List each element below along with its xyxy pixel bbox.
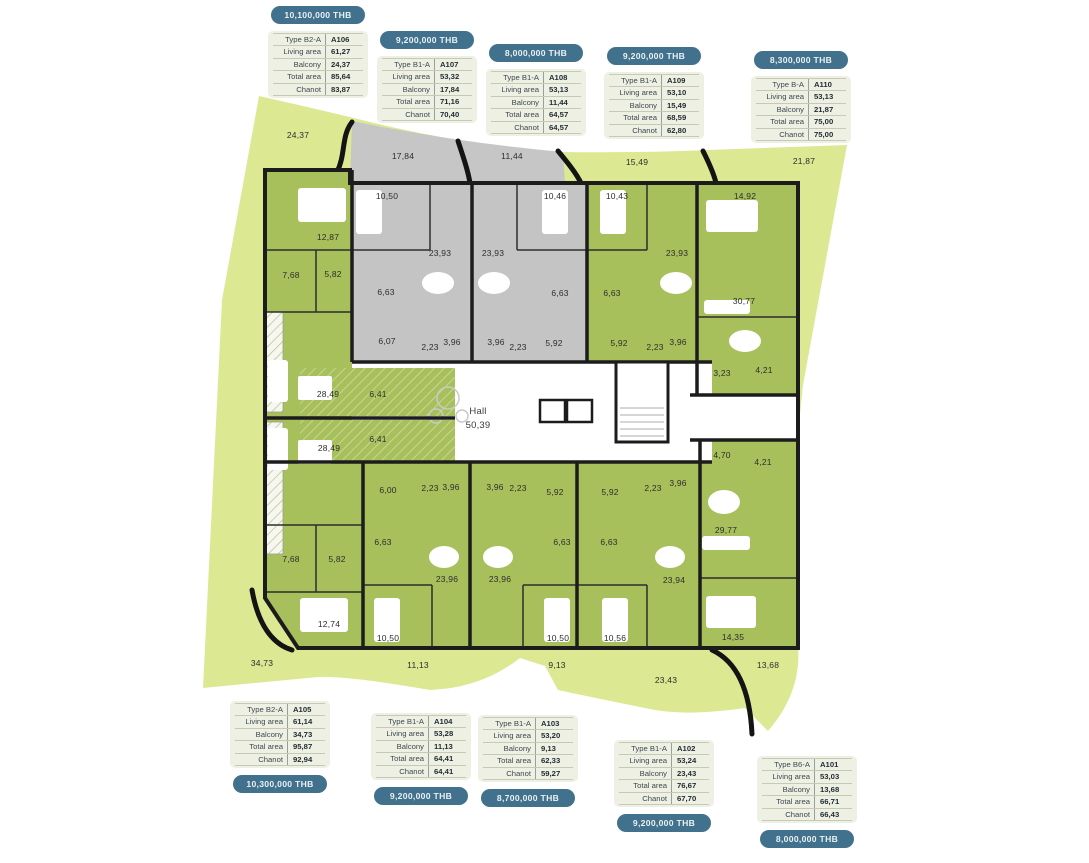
unit-cards-layer: 10,100,000 THB Type B2-AA106Living area6… [0, 0, 1089, 863]
row-label: Chanot [273, 84, 326, 95]
row-label: Living area [273, 46, 326, 57]
card-row: Chanot59,27 [483, 768, 573, 780]
row-label: Balcony [382, 84, 435, 95]
unit-card-a109: 9,200,000 THB Type B1-AA109Living area53… [604, 47, 704, 139]
row-label: Chanot [376, 766, 429, 777]
row-value: 53,28 [429, 728, 466, 739]
card-row: Balcony34,73 [235, 729, 325, 741]
row-label: Type B1-A [483, 718, 536, 729]
unit-info-table: Type B1-AA107Living area53,32Balcony17,8… [377, 56, 477, 123]
card-row: Total area68,59 [609, 112, 699, 124]
unit-card-a108: 8,000,000 THB Type B1-AA108Living area53… [486, 44, 586, 136]
row-label: Living area [619, 755, 672, 766]
card-row: Total area75,00 [756, 116, 846, 128]
row-label: Balcony [376, 741, 429, 752]
card-row: Chanot83,87 [273, 84, 363, 96]
row-value: A101 [815, 759, 852, 770]
card-row: Living area53,10 [609, 87, 699, 99]
card-row: Type B1-AA109 [609, 74, 699, 87]
card-row: Living area53,32 [382, 71, 472, 83]
unit-card-a101: 8,000,000 THB Type B6-AA101Living area53… [757, 756, 857, 848]
row-label: Type B1-A [609, 75, 662, 86]
card-row: Balcony24,37 [273, 59, 363, 71]
row-label: Chanot [756, 129, 809, 140]
row-value: 53,32 [435, 71, 472, 82]
row-value: 53,24 [672, 755, 709, 766]
row-value: 83,87 [326, 84, 363, 95]
row-label: Balcony [619, 768, 672, 779]
card-row: Balcony11,44 [491, 97, 581, 109]
price-badge: 10,100,000 THB [271, 6, 365, 24]
unit-card-a107: 9,200,000 THB Type B1-AA107Living area53… [377, 31, 477, 123]
row-label: Type B1-A [382, 59, 435, 70]
card-row: Living area53,24 [619, 755, 709, 767]
card-row: Living area61,14 [235, 716, 325, 728]
card-row: Total area71,16 [382, 96, 472, 108]
row-value: 21,87 [809, 104, 846, 115]
card-row: Type B1-AA104 [376, 715, 466, 728]
row-label: Balcony [762, 784, 815, 795]
floorplan-page: 24,3717,8411,4415,4921,8734,7311,139,132… [0, 0, 1089, 863]
card-row: Type B1-AA108 [491, 71, 581, 84]
row-value: 61,27 [326, 46, 363, 57]
row-label: Total area [382, 96, 435, 107]
row-label: Type B2-A [235, 704, 288, 715]
card-row: Living area53,13 [756, 91, 846, 103]
unit-card-a106: 10,100,000 THB Type B2-AA106Living area6… [268, 6, 368, 98]
row-label: Total area [491, 109, 544, 120]
unit-info-table: Type B1-AA102Living area53,24Balcony23,4… [614, 740, 714, 807]
row-value: 34,73 [288, 729, 325, 740]
row-value: 23,43 [672, 768, 709, 779]
card-row: Total area85,64 [273, 71, 363, 83]
row-value: 85,64 [326, 71, 363, 82]
unit-info-table: Type B1-AA108Living area53,13Balcony11,4… [486, 69, 586, 136]
row-value: 17,84 [435, 84, 472, 95]
row-value: 62,80 [662, 125, 699, 136]
row-value: 64,41 [429, 753, 466, 764]
row-label: Balcony [491, 97, 544, 108]
card-row: Balcony17,84 [382, 84, 472, 96]
row-value: 9,13 [536, 743, 573, 754]
card-row: Balcony23,43 [619, 768, 709, 780]
row-label: Chanot [382, 109, 435, 120]
row-value: 64,41 [429, 766, 466, 777]
card-row: Total area64,41 [376, 753, 466, 765]
unit-card-a103: 8,700,000 THB Type B1-AA103Living area53… [478, 715, 578, 807]
card-row: Type B-AA110 [756, 78, 846, 91]
row-label: Balcony [756, 104, 809, 115]
row-label: Type B2-A [273, 34, 326, 45]
row-label: Type B1-A [376, 716, 429, 727]
row-value: 53,20 [536, 730, 573, 741]
row-value: 92,94 [288, 754, 325, 765]
unit-info-table: Type B1-AA104Living area53,28Balcony11,1… [371, 713, 471, 780]
card-row: Balcony13,68 [762, 784, 852, 796]
card-row: Living area53,28 [376, 728, 466, 740]
row-value: A104 [429, 716, 466, 727]
row-value: 64,57 [544, 122, 581, 133]
row-value: 11,13 [429, 741, 466, 752]
card-row: Type B2-AA106 [273, 33, 363, 46]
row-label: Balcony [235, 729, 288, 740]
price-badge: 9,200,000 THB [374, 787, 468, 805]
row-value: A109 [662, 75, 699, 86]
row-value: 70,40 [435, 109, 472, 120]
row-label: Type B1-A [491, 72, 544, 83]
row-value: 68,59 [662, 112, 699, 123]
row-value: 75,00 [809, 129, 846, 140]
row-label: Balcony [273, 59, 326, 70]
row-label: Chanot [235, 754, 288, 765]
row-label: Chanot [491, 122, 544, 133]
card-row: Chanot67,70 [619, 793, 709, 805]
price-badge: 8,700,000 THB [481, 789, 575, 807]
unit-info-table: Type B2-AA106Living area61,27Balcony24,3… [268, 31, 368, 98]
unit-info-table: Type B6-AA101Living area53,03Balcony13,6… [757, 756, 857, 823]
price-badge: 8,300,000 THB [754, 51, 848, 69]
row-value: 75,00 [809, 116, 846, 127]
row-label: Living area [491, 84, 544, 95]
row-label: Living area [376, 728, 429, 739]
card-row: Type B1-AA102 [619, 742, 709, 755]
row-label: Chanot [619, 793, 672, 804]
card-row: Total area66,71 [762, 796, 852, 808]
card-row: Living area53,03 [762, 771, 852, 783]
price-badge: 9,200,000 THB [607, 47, 701, 65]
card-row: Balcony21,87 [756, 104, 846, 116]
row-value: 95,87 [288, 741, 325, 752]
card-row: Type B6-AA101 [762, 758, 852, 771]
row-label: Type B-A [756, 79, 809, 90]
row-label: Chanot [762, 809, 815, 820]
row-value: 15,49 [662, 100, 699, 111]
row-label: Total area [235, 741, 288, 752]
card-row: Type B1-AA103 [483, 717, 573, 730]
row-label: Living area [483, 730, 536, 741]
unit-card-a110: 8,300,000 THB Type B-AA110Living area53,… [751, 51, 851, 143]
row-label: Balcony [483, 743, 536, 754]
row-value: 53,13 [809, 91, 846, 102]
row-value: 64,57 [544, 109, 581, 120]
price-badge: 9,200,000 THB [617, 814, 711, 832]
row-value: A108 [544, 72, 581, 83]
price-badge: 10,300,000 THB [233, 775, 327, 793]
row-value: A106 [326, 34, 363, 45]
row-value: A103 [536, 718, 573, 729]
row-label: Total area [376, 753, 429, 764]
card-row: Balcony9,13 [483, 743, 573, 755]
unit-info-table: Type B2-AA105Living area61,14Balcony34,7… [230, 701, 330, 768]
card-row: Total area76,67 [619, 780, 709, 792]
unit-info-table: Type B1-AA109Living area53,10Balcony15,4… [604, 72, 704, 139]
row-value: 53,13 [544, 84, 581, 95]
row-value: A105 [288, 704, 325, 715]
card-row: Type B2-AA105 [235, 703, 325, 716]
row-label: Living area [382, 71, 435, 82]
card-row: Chanot92,94 [235, 754, 325, 766]
row-label: Living area [235, 716, 288, 727]
card-row: Total area95,87 [235, 741, 325, 753]
card-row: Chanot75,00 [756, 129, 846, 141]
row-value: 53,03 [815, 771, 852, 782]
row-value: A102 [672, 743, 709, 754]
row-label: Living area [756, 91, 809, 102]
unit-info-table: Type B1-AA103Living area53,20Balcony9,13… [478, 715, 578, 782]
row-label: Total area [483, 755, 536, 766]
card-row: Total area62,33 [483, 755, 573, 767]
card-row: Balcony11,13 [376, 741, 466, 753]
row-label: Type B1-A [619, 743, 672, 754]
card-row: Chanot70,40 [382, 109, 472, 121]
row-value: A110 [809, 79, 846, 90]
row-value: 66,71 [815, 796, 852, 807]
row-value: 67,70 [672, 793, 709, 804]
row-label: Balcony [609, 100, 662, 111]
price-badge: 8,000,000 THB [760, 830, 854, 848]
unit-card-a104: 9,200,000 THB Type B1-AA104Living area53… [371, 713, 471, 805]
card-row: Living area53,20 [483, 730, 573, 742]
row-label: Total area [609, 112, 662, 123]
card-row: Living area53,13 [491, 84, 581, 96]
card-row: Chanot66,43 [762, 809, 852, 821]
row-label: Chanot [609, 125, 662, 136]
row-value: 13,68 [815, 784, 852, 795]
price-badge: 8,000,000 THB [489, 44, 583, 62]
unit-info-table: Type B-AA110Living area53,13Balcony21,87… [751, 76, 851, 143]
row-label: Type B6-A [762, 759, 815, 770]
row-label: Total area [756, 116, 809, 127]
card-row: Type B1-AA107 [382, 58, 472, 71]
row-label: Chanot [483, 768, 536, 779]
card-row: Chanot64,57 [491, 122, 581, 134]
row-value: 61,14 [288, 716, 325, 727]
row-value: 71,16 [435, 96, 472, 107]
card-row: Chanot64,41 [376, 766, 466, 778]
card-row: Chanot62,80 [609, 125, 699, 137]
row-label: Living area [609, 87, 662, 98]
row-value: 53,10 [662, 87, 699, 98]
row-value: 76,67 [672, 780, 709, 791]
row-value: 62,33 [536, 755, 573, 766]
unit-card-a105: 10,300,000 THB Type B2-AA105Living area6… [230, 701, 330, 793]
card-row: Balcony15,49 [609, 100, 699, 112]
card-row: Total area64,57 [491, 109, 581, 121]
row-label: Total area [619, 780, 672, 791]
row-value: A107 [435, 59, 472, 70]
price-badge: 9,200,000 THB [380, 31, 474, 49]
unit-card-a102: 9,200,000 THB Type B1-AA102Living area53… [614, 740, 714, 832]
row-label: Living area [762, 771, 815, 782]
row-value: 66,43 [815, 809, 852, 820]
row-label: Total area [762, 796, 815, 807]
row-value: 59,27 [536, 768, 573, 779]
card-row: Living area61,27 [273, 46, 363, 58]
row-value: 24,37 [326, 59, 363, 70]
row-label: Total area [273, 71, 326, 82]
row-value: 11,44 [544, 97, 581, 108]
